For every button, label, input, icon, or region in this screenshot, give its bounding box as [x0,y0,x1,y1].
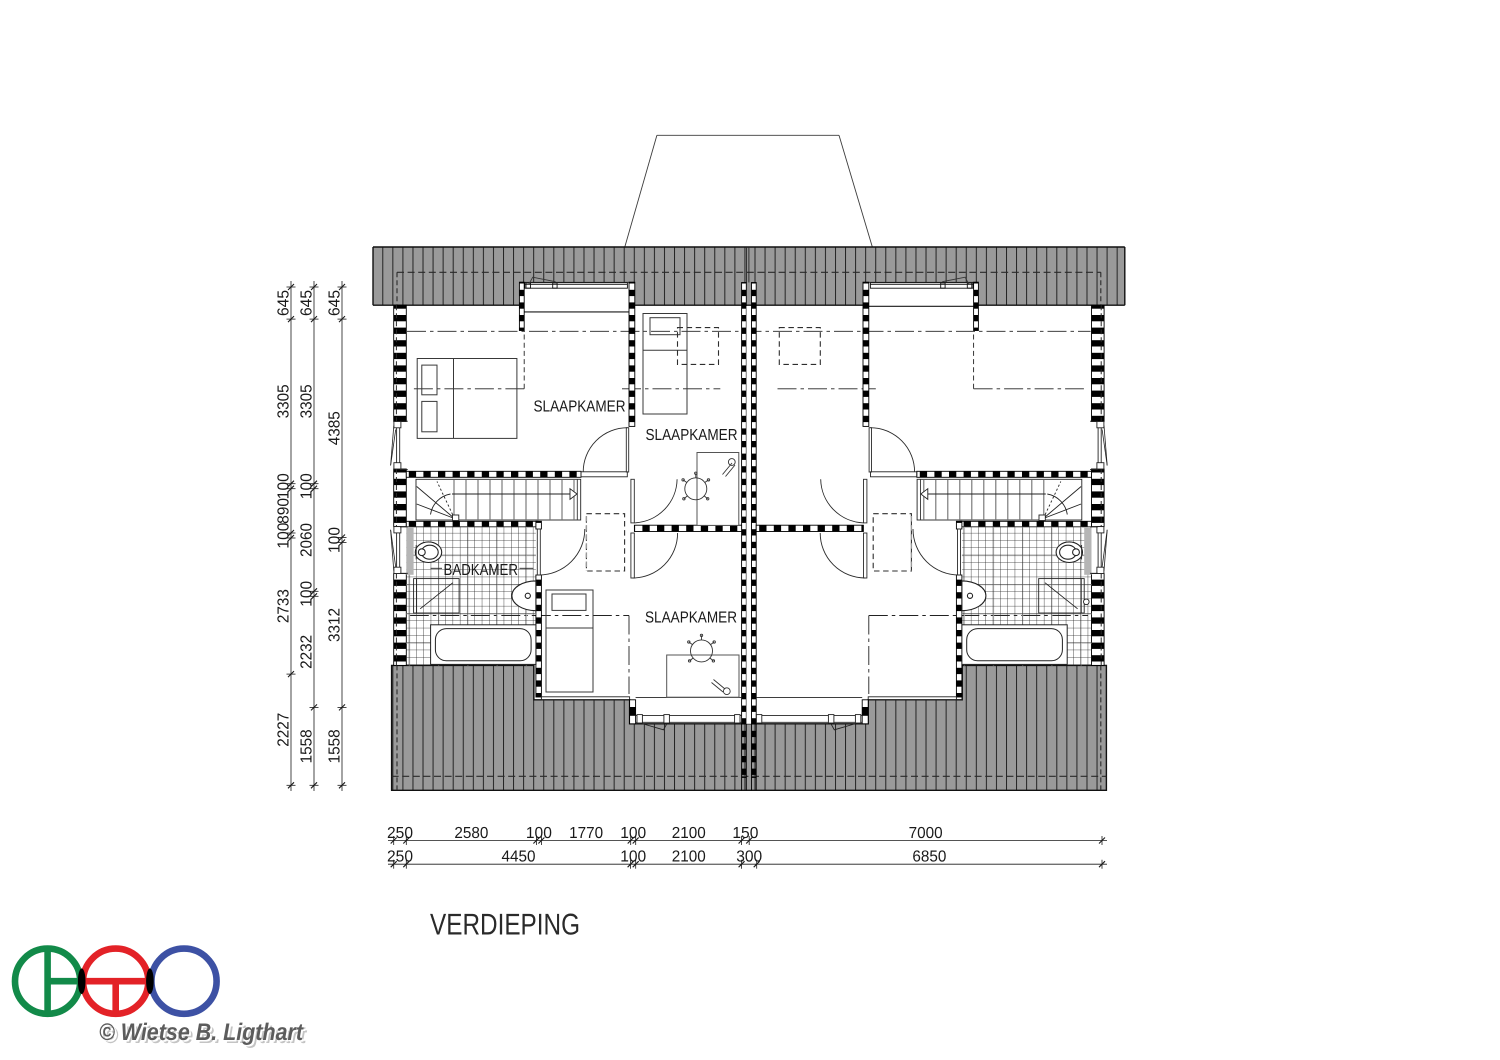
svg-text:1770: 1770 [569,825,603,842]
svg-text:6850: 6850 [912,849,946,866]
svg-text:2100: 2100 [672,825,706,842]
svg-text:2060: 2060 [299,523,316,557]
svg-text:2100: 2100 [672,849,706,866]
svg-text:SLAAPKAMER: SLAAPKAMER [646,427,738,444]
svg-text:250: 250 [387,825,413,842]
svg-text:250: 250 [387,849,413,866]
svg-text:300: 300 [736,849,762,866]
svg-text:100: 100 [526,825,552,842]
svg-text:VERDIEPING: VERDIEPING [430,909,580,942]
svg-text:100: 100 [327,527,344,553]
svg-text:100: 100 [299,473,316,499]
svg-text:150: 150 [732,825,758,842]
svg-text:100: 100 [620,825,646,842]
svg-text:BADKAMER: BADKAMER [444,562,519,579]
svg-text:4450: 4450 [502,849,536,866]
svg-text:SLAAPKAMER: SLAAPKAMER [645,610,737,627]
svg-text:645: 645 [276,290,293,316]
svg-text:2580: 2580 [454,825,488,842]
svg-text:2227: 2227 [276,713,293,747]
svg-text:100: 100 [620,849,646,866]
svg-text:100: 100 [276,523,293,549]
svg-text:4385: 4385 [327,411,344,445]
svg-text:3305: 3305 [299,384,316,418]
svg-text:100: 100 [299,581,316,607]
svg-text:© Wietse B. Ligthart: © Wietse B. Ligthart [99,1019,304,1046]
svg-text:890: 890 [276,498,293,524]
svg-text:2733: 2733 [276,589,293,623]
svg-text:645: 645 [327,290,344,316]
svg-text:3312: 3312 [327,608,344,642]
svg-text:1558: 1558 [327,729,344,763]
svg-text:3305: 3305 [276,384,293,418]
svg-text:100: 100 [276,473,293,499]
svg-text:7000: 7000 [909,825,943,842]
svg-text:SLAAPKAMER: SLAAPKAMER [534,399,626,416]
svg-text:2232: 2232 [299,635,316,669]
svg-text:645: 645 [299,290,316,316]
svg-text:1558: 1558 [299,729,316,763]
